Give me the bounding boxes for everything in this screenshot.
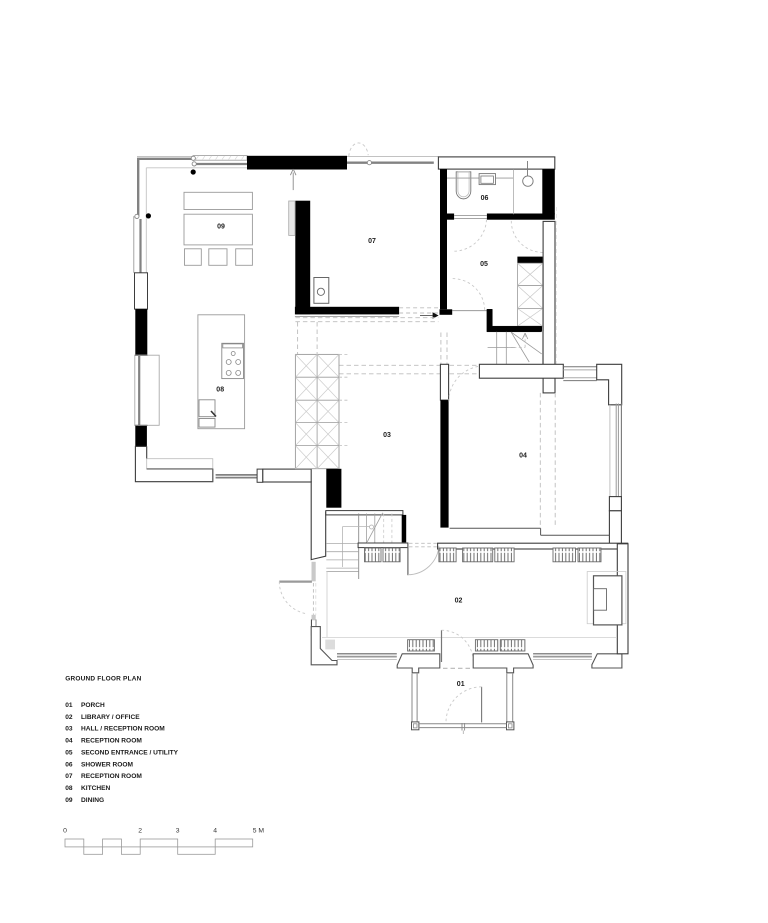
svg-text:08: 08 xyxy=(216,386,224,393)
svg-text:01: 01 xyxy=(457,681,465,688)
svg-text:RECEPTION ROOM: RECEPTION ROOM xyxy=(81,738,142,745)
svg-text:02: 02 xyxy=(455,598,463,605)
svg-text:KITCHEN: KITCHEN xyxy=(81,785,111,792)
svg-text:09: 09 xyxy=(65,797,73,804)
svg-text:2: 2 xyxy=(138,828,142,835)
svg-text:SHOWER ROOM: SHOWER ROOM xyxy=(81,761,134,768)
svg-text:02: 02 xyxy=(65,714,73,721)
svg-text:09: 09 xyxy=(217,224,225,231)
svg-text:07: 07 xyxy=(65,773,73,780)
svg-text:03: 03 xyxy=(383,432,391,439)
svg-text:PORCH: PORCH xyxy=(81,702,105,709)
svg-text:4: 4 xyxy=(213,828,217,835)
svg-text:0: 0 xyxy=(63,828,67,835)
svg-text:RECEPTION ROOM: RECEPTION ROOM xyxy=(81,773,142,780)
svg-text:5 M: 5 M xyxy=(253,828,265,835)
svg-text:LIBRARY / OFFICE: LIBRARY / OFFICE xyxy=(81,714,140,721)
svg-text:04: 04 xyxy=(65,738,73,745)
svg-text:04: 04 xyxy=(519,452,527,459)
svg-text:01: 01 xyxy=(65,702,73,709)
svg-text:05: 05 xyxy=(480,261,488,268)
svg-text:03: 03 xyxy=(65,726,73,733)
svg-text:06: 06 xyxy=(65,761,73,768)
svg-text:06: 06 xyxy=(481,195,489,202)
svg-text:GROUND FLOOR PLAN: GROUND FLOOR PLAN xyxy=(65,676,141,683)
svg-text:07: 07 xyxy=(368,238,376,245)
svg-text:3: 3 xyxy=(176,828,180,835)
svg-text:DINING: DINING xyxy=(81,797,104,804)
svg-text:SECOND ENTRANCE / UTILITY: SECOND ENTRANCE / UTILITY xyxy=(81,749,179,756)
svg-text:HALL / RECEPTION ROOM: HALL / RECEPTION ROOM xyxy=(81,726,165,733)
svg-text:08: 08 xyxy=(65,785,73,792)
svg-text:05: 05 xyxy=(65,749,73,756)
